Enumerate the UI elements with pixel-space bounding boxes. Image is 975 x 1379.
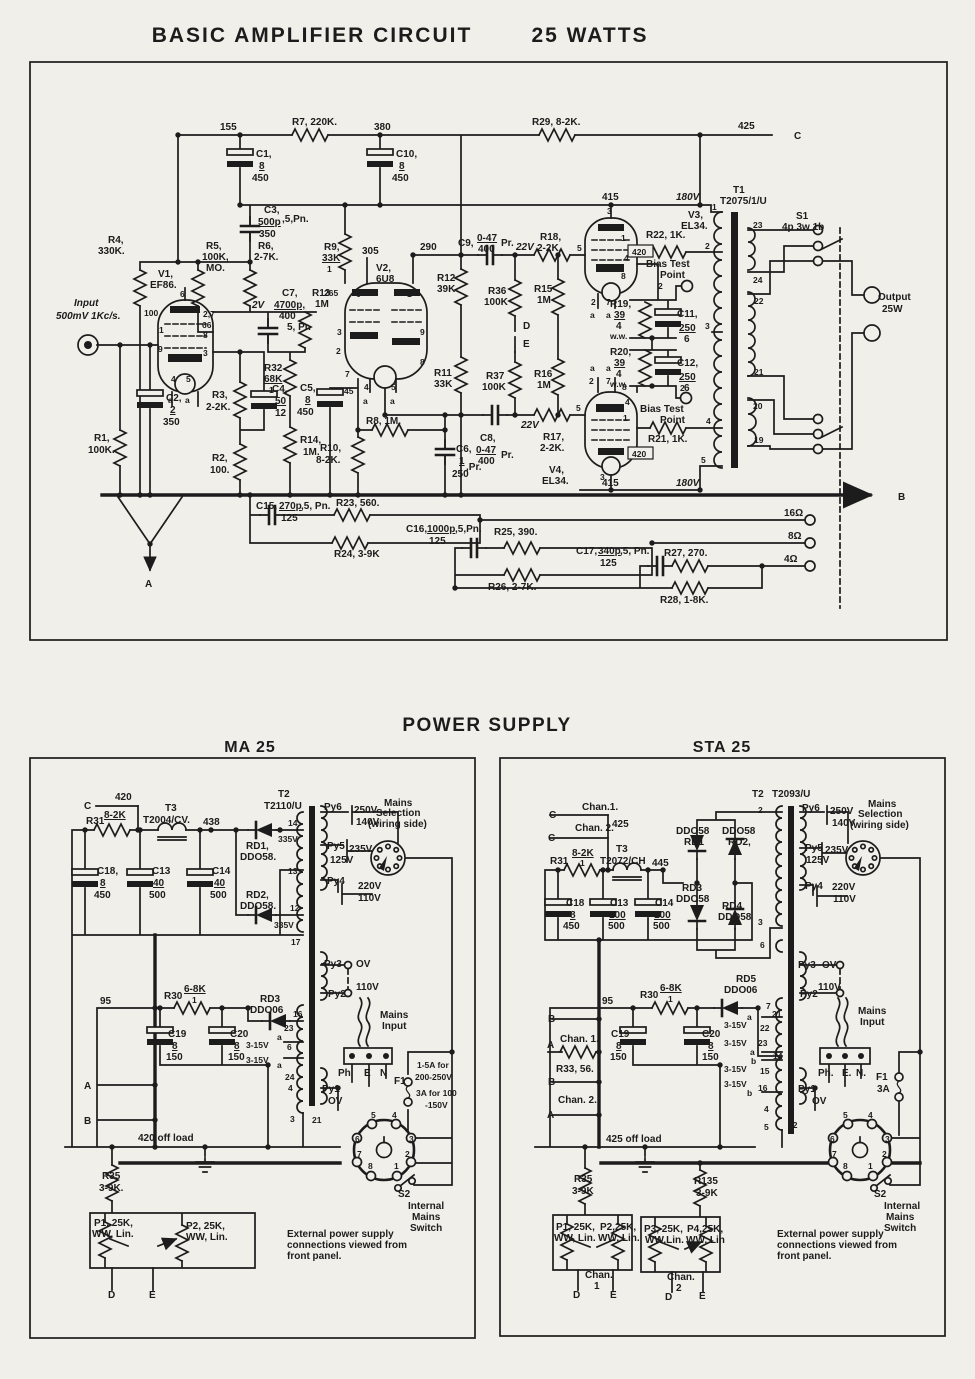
- schematic-label: 425: [612, 819, 629, 830]
- schematic-label: 1: [327, 264, 332, 274]
- schematic-label: P2, 25K,: [186, 1221, 225, 1232]
- schematic-label: 16Ω: [784, 508, 803, 519]
- schematic-label: C1,: [256, 149, 272, 160]
- sta-resistors: [560, 864, 712, 1262]
- schematic-label: R29, 8-2K.: [532, 117, 581, 128]
- schematic-label: 125V: [806, 855, 830, 866]
- schematic-label: 250: [452, 469, 469, 480]
- schematic-label: Py4: [327, 876, 345, 887]
- schematic-label: ,5, Pn.: [620, 546, 650, 557]
- schematic-label: OV: [328, 1096, 343, 1107]
- schematic-label: Chan.1.: [582, 802, 618, 813]
- schematic-label: 100K: [484, 297, 509, 308]
- schematic-label: 6-8K: [660, 983, 682, 994]
- schematic-label: R18,: [540, 232, 561, 243]
- schematic-label: 2: [658, 281, 663, 291]
- schematic-label: Chan.: [585, 1270, 613, 1281]
- schematic-label: b: [751, 1056, 756, 1066]
- schematic-label: C: [548, 833, 555, 844]
- schematic-label: E: [149, 1290, 156, 1301]
- schematic-label: R26, 2-7K.: [488, 582, 537, 593]
- schematic-label: Bias Test: [640, 404, 684, 415]
- schematic-label: 2-2K.: [206, 402, 231, 413]
- schematic-label: 500: [608, 921, 625, 932]
- schematic-label: 420 off load: [138, 1133, 194, 1144]
- schematic-label: 2-7K.: [254, 252, 279, 263]
- amplifier-panel: 155R7, 220K.380R29, 8-2K.425CC1,8450C10,…: [56, 117, 911, 608]
- schematic-label: 4Ω: [784, 554, 798, 565]
- schematic-label: A: [84, 1081, 91, 1092]
- sta25-panel: Chan.1.CChan. 2.C425R318-2K1T3T2072/CH44…: [535, 789, 923, 1303]
- schematic-label: Chan.: [667, 1272, 695, 1283]
- schematic-label: 2: [680, 383, 685, 393]
- schematic-label: External power supply: [777, 1229, 884, 1240]
- schematic-label: 7: [766, 1001, 771, 1011]
- schematic-label: 180V: [676, 478, 701, 489]
- schematic-label: 335V: [274, 920, 294, 930]
- schematic-label: 15: [760, 1066, 770, 1076]
- schematic-label: 3-15V: [724, 1064, 747, 1074]
- schematic-label: 12: [788, 1120, 798, 1130]
- schematic-label: RD3: [260, 994, 280, 1005]
- schematic-label: R23, 560.: [336, 498, 380, 509]
- schematic-label: 6-8K: [184, 984, 206, 995]
- schematic-label: WW.Lin.: [645, 1235, 684, 1246]
- schematic-label: 2V: [251, 300, 266, 311]
- schematic-label: 2: [758, 805, 763, 815]
- schematic-label: 3-9K: [696, 1188, 718, 1199]
- schematic-label: 425: [738, 121, 755, 132]
- schematic-label: C13: [610, 898, 629, 909]
- schematic-label: 3: [203, 348, 208, 358]
- fuse-f1-sta: [895, 1073, 903, 1101]
- schematic-label: OV: [356, 959, 371, 970]
- schematic-label: 7: [606, 376, 611, 386]
- schematic-label: 420: [632, 247, 646, 257]
- schematic-label: connections viewed from: [287, 1240, 407, 1251]
- schematic-label: 1: [712, 202, 717, 212]
- schematic-label: 4: [868, 1110, 873, 1120]
- schematic-label: Chan. 1.: [560, 1034, 599, 1045]
- amp-capacitors: [137, 149, 681, 575]
- schematic-label: 13: [288, 866, 298, 876]
- schematic-label: RD1,: [246, 841, 269, 852]
- schematic-label: b: [747, 1088, 752, 1098]
- schematic-label: 450: [392, 173, 409, 184]
- schematic-label: 1: [192, 995, 197, 1005]
- schematic-label: 1: [868, 1161, 873, 1171]
- schematic-label: Mains: [886, 1212, 915, 1223]
- schematic-label: ,5,Pn.: [455, 524, 482, 535]
- schematic-label: MO.: [206, 263, 225, 274]
- schematic-label: Py6: [324, 802, 342, 813]
- schematic-label: 33K: [434, 379, 453, 390]
- schematic-label: 8: [399, 161, 405, 172]
- schematic-label: S2: [874, 1189, 887, 1200]
- schematic-label: 125: [600, 558, 617, 569]
- page-title: BASIC AMPLIFIER CIRCUIT: [152, 24, 473, 47]
- schematic-label: 250: [679, 372, 696, 383]
- schematic-label: C2,: [166, 393, 182, 404]
- schematic-label: 1: [394, 1161, 399, 1171]
- schematic-label: A: [145, 579, 152, 590]
- schematic-label: Switch: [884, 1223, 916, 1234]
- schematic-label: 6: [355, 1134, 360, 1144]
- output-transformer-t1: [714, 212, 756, 468]
- schematic-label: 3-9K.: [99, 1183, 124, 1194]
- schematic-label: 1M: [315, 299, 329, 310]
- mains-selector-sta: [846, 841, 880, 875]
- schematic-label: Internal: [884, 1201, 920, 1212]
- schematic-label: 6: [180, 289, 185, 299]
- schematic-label: B: [898, 492, 905, 503]
- schematic-label: 4: [392, 1110, 397, 1120]
- schematic-label: C18,: [97, 866, 118, 877]
- sta25-title: STA 25: [693, 739, 751, 756]
- schematic-label: 7: [357, 1149, 362, 1159]
- schematic-label: 6: [287, 1042, 292, 1052]
- schematic-label: 4: [364, 382, 369, 392]
- schematic-label: Py5: [805, 843, 823, 854]
- schematic-label: 6: [760, 940, 765, 950]
- schematic-label: 0-47: [477, 233, 497, 244]
- schematic-label: R10,: [320, 443, 341, 454]
- schematic-label: 438: [203, 817, 220, 828]
- schematic-label: 7: [345, 369, 350, 379]
- schematic-label: Chan. 2.: [575, 823, 614, 834]
- schematic-label: Input: [382, 1021, 407, 1032]
- schematic-label: C20: [702, 1029, 721, 1040]
- schematic-label: Mains: [858, 1006, 887, 1017]
- schematic-label: R7, 220K.: [292, 117, 337, 128]
- schematic-label: C15,: [256, 501, 277, 512]
- schematic-label: 3: [409, 1134, 414, 1144]
- schematic-label: WW, Lin.: [598, 1233, 640, 1244]
- mains-selector-ma: [371, 841, 405, 875]
- schematic-label: 500: [210, 890, 227, 901]
- schematic-label: 5: [371, 1110, 376, 1120]
- schematic-label: R22, 1K.: [646, 230, 686, 241]
- schematic-label: R8, 1M.: [366, 416, 401, 427]
- schematic-label: R1,: [94, 433, 110, 444]
- schematic-label: R5,: [206, 241, 222, 252]
- schematic-label: Ph: [338, 1068, 351, 1079]
- schematic-label: E: [523, 339, 530, 350]
- schematic-label: F1: [876, 1072, 888, 1083]
- schematic-label: T3: [165, 803, 177, 814]
- schematic-label: 8: [843, 1161, 848, 1171]
- schematic-label: P2,25K,: [600, 1222, 636, 1233]
- schematic-label: 8: [616, 1041, 622, 1052]
- schematic-label: WW, Lin.: [186, 1232, 228, 1243]
- schematic-label: 415: [602, 192, 619, 203]
- schematic-label: P1, 25K,: [94, 1218, 133, 1229]
- schematic-label: 33K: [322, 253, 341, 264]
- schematic-label: 14: [773, 1051, 783, 1061]
- page-subtitle: 25 WATTS: [531, 24, 648, 47]
- schematic-label: 21: [772, 1009, 782, 1019]
- schematic-label: RD2,: [246, 890, 269, 901]
- schematic-label: 66: [202, 320, 212, 330]
- schematic-label: a: [590, 310, 595, 320]
- schematic-label: 21: [754, 367, 764, 377]
- schematic-label: 24: [753, 275, 763, 285]
- schematic-label: 8: [259, 161, 265, 172]
- schematic-label: 5: [843, 1110, 848, 1120]
- schematic-label: 9: [420, 327, 425, 337]
- schematic-label: E: [699, 1291, 706, 1302]
- schematic-label: 22: [760, 1023, 770, 1033]
- schematic-label: F1: [394, 1076, 406, 1087]
- schematic-label: 8-2K: [104, 810, 126, 821]
- schematic-label: 1: [668, 994, 673, 1004]
- schematic-label: 2: [676, 1283, 682, 1294]
- schematic-label: C18: [566, 898, 585, 909]
- schematic-label: 25W: [882, 304, 903, 315]
- schematic-label: 290: [420, 242, 437, 253]
- schematic-label: front panel.: [777, 1251, 832, 1262]
- schematic-label: 39: [614, 358, 626, 369]
- schematic-label: 3-15V: [246, 1040, 269, 1050]
- schematic-label: R36: [488, 286, 507, 297]
- schematic-label: T2110/U: [264, 801, 302, 812]
- schematic-label: 500: [149, 890, 166, 901]
- schematic-label: R4,: [108, 235, 124, 246]
- schematic-label: 4700p,: [274, 300, 305, 311]
- schematic-label: 4: [288, 1083, 293, 1093]
- schematic-label: DDO58: [722, 826, 756, 837]
- schematic-label: 125: [429, 536, 446, 547]
- schematic-label: 110V: [358, 893, 381, 904]
- schematic-label: R14,: [300, 435, 321, 446]
- schematic-label: WW, Lin.: [92, 1229, 134, 1240]
- schematic-label: D: [108, 1290, 115, 1301]
- schematic-label: 1: [580, 858, 585, 868]
- schematic-label: C7,: [282, 288, 298, 299]
- schematic-label: 1-5A for: [417, 1060, 449, 1070]
- schematic-label: WW, Lin: [686, 1235, 725, 1246]
- schematic-label: 4p 3w 1b: [782, 222, 824, 233]
- schematic-label: 1: [159, 325, 164, 335]
- schematic-label: 8: [172, 1041, 178, 1052]
- schematic-label: 3-15V: [724, 1038, 747, 1048]
- schematic-label: N: [380, 1068, 387, 1079]
- schematic-label: 5: [577, 243, 582, 253]
- schematic-label: 16: [758, 1083, 768, 1093]
- schematic-label: 500: [653, 921, 670, 932]
- schematic-label: 4: [625, 397, 630, 407]
- schematic-label: T1: [733, 185, 745, 196]
- schematic-label: 450: [297, 407, 314, 418]
- schematic-label: RD4: [722, 901, 742, 912]
- schematic-label: R31: [550, 856, 569, 867]
- schematic-label: C19: [611, 1029, 630, 1040]
- schematic-label: 3A: [877, 1084, 890, 1095]
- schematic-label: 8: [100, 878, 106, 889]
- schematic-label: 150: [166, 1052, 183, 1063]
- ma25-panel: C420R318-2KT3T2004/CV.438C18,8450C134050…: [65, 789, 457, 1301]
- schematic-label: C10,: [396, 149, 417, 160]
- schematic-label: 45: [344, 386, 354, 396]
- schematic-label: 6: [830, 1134, 835, 1144]
- schematic-label: C: [794, 131, 801, 142]
- schematic-label: N.: [856, 1068, 866, 1079]
- schematic-label: T2004/CV.: [143, 815, 190, 826]
- schematic-label: 350: [163, 417, 180, 428]
- schematic-label: A: [547, 1110, 554, 1121]
- schematic-label: 0-47: [476, 445, 496, 456]
- schematic-label: R20,: [610, 347, 631, 358]
- schematic-label: 3-15V: [724, 1020, 747, 1030]
- schematic-label: 6U8: [376, 274, 395, 285]
- schematic-label: 110V: [356, 982, 379, 993]
- schematic-label: External power supply: [287, 1229, 394, 1240]
- schematic-label: 7: [832, 1149, 837, 1159]
- schematic-label: RD3: [682, 883, 702, 894]
- schematic-label: a: [277, 1060, 282, 1070]
- schematic-label: Py2: [800, 989, 818, 1000]
- schematic-label: C6,: [456, 444, 472, 455]
- schematic-label: DDO06: [724, 985, 758, 996]
- schematic-label: ,5, Pn.: [301, 501, 331, 512]
- schematic-label: 8: [708, 1041, 714, 1052]
- schematic-label: Chan. 2.: [558, 1095, 597, 1106]
- schematic-label: 100: [654, 910, 671, 921]
- schematic-label: Py4: [805, 881, 823, 892]
- schematic-label: 250: [679, 323, 696, 334]
- schematic-label: 8: [420, 357, 425, 367]
- schematic-label: S1: [796, 211, 809, 222]
- schematic-label: D: [573, 1290, 580, 1301]
- schematic-label: 68K: [264, 374, 283, 385]
- schematic-label: 450: [94, 890, 111, 901]
- schematic-label: 220V: [358, 881, 382, 892]
- schematic-label: Point: [660, 270, 686, 281]
- schematic-label: 1M: [537, 380, 551, 391]
- schematic-label: 110V: [833, 894, 856, 905]
- schematic-label: 22: [754, 296, 764, 306]
- schematic-label: Pr.: [501, 238, 514, 249]
- schematic-label: 1: [623, 413, 628, 423]
- schematic-label: P4,25K,: [687, 1224, 723, 1235]
- schematic-label: R25, 390.: [494, 527, 538, 538]
- schematic-label: R30: [164, 991, 183, 1002]
- schematic-label: 155: [220, 122, 237, 133]
- schematic-label: Ph.: [818, 1068, 834, 1079]
- schematic-label: Internal: [408, 1201, 444, 1212]
- schematic-label: 100K.: [88, 445, 115, 456]
- schematic-label: 95: [602, 996, 614, 1007]
- schematic-label: Py3: [324, 959, 342, 970]
- schematic-label: 23: [758, 1038, 768, 1048]
- schematic-label: RD5: [736, 974, 756, 985]
- schematic-label: C16,: [406, 524, 427, 535]
- schematic-label: V2,: [376, 263, 391, 274]
- schematic-label: 100K: [482, 382, 507, 393]
- schematic-label: 6: [684, 383, 690, 394]
- schematic-label: 1000p: [427, 524, 455, 535]
- schematic-label: Point: [660, 415, 686, 426]
- schematic-label: R135: [694, 1176, 718, 1187]
- schematic-label: Input: [860, 1017, 885, 1028]
- schematic-label: Py1: [798, 1084, 816, 1095]
- schematic-label: DDO58.: [240, 901, 276, 912]
- schematic-label: T2072/CH: [600, 856, 646, 867]
- schematic-label: V3,: [688, 210, 703, 221]
- schematic-label: 445: [652, 858, 669, 869]
- schematic-label: 125: [281, 513, 298, 524]
- schematic-label: 3: [705, 321, 710, 331]
- schematic-label: R27, 270.: [664, 548, 708, 559]
- schematic-label: 23: [753, 220, 763, 230]
- schematic-label: 100: [144, 308, 158, 318]
- schematic-label: C17,: [576, 546, 597, 557]
- schematic-label: R11: [434, 368, 452, 379]
- schematic-label: R30: [640, 990, 659, 1001]
- schematic-label: 5, Pr.: [287, 322, 311, 333]
- schematic-label: EL34.: [542, 476, 569, 487]
- schematic-label: OV: [812, 1096, 827, 1107]
- schematic-label: 8: [234, 1041, 240, 1052]
- mains-transformer-t2-ma: [297, 806, 327, 1113]
- schematic-label: B: [548, 1077, 555, 1088]
- schematic-label: 6: [356, 289, 361, 299]
- schematic-label: R9,: [324, 242, 340, 253]
- schematic-label: 23: [284, 1023, 294, 1033]
- schematic-label: 95: [100, 996, 112, 1007]
- schematic-label: 17: [291, 937, 301, 947]
- schematic-label: C: [549, 810, 556, 821]
- schematic-label: C20: [230, 1029, 249, 1040]
- schematic-label: 150: [228, 1052, 245, 1063]
- schematic-label: 150: [702, 1052, 719, 1063]
- schematic-label: C9,: [458, 238, 474, 249]
- schematic-label: 420: [632, 449, 646, 459]
- schematic-label: B: [548, 1014, 555, 1025]
- ground-ma: [196, 1158, 214, 1172]
- schematic-label: DDO06: [250, 1005, 284, 1016]
- schematic-label: 6: [684, 334, 690, 345]
- schematic-label: 3: [337, 327, 342, 337]
- schematic-label: a: [590, 363, 595, 373]
- schematic-label: 3: [607, 206, 612, 216]
- schematic-label: 8: [203, 330, 208, 340]
- schematic-label: R28, 1-8K.: [660, 595, 709, 606]
- schematic-label: C5,: [300, 383, 316, 394]
- schematic-label: 250V: [830, 806, 854, 817]
- schematic-label: 8: [622, 382, 627, 392]
- schematic-label: R16: [534, 369, 553, 380]
- schematic-label: 1: [594, 1281, 600, 1292]
- schematic-label: 425 off load: [606, 1134, 662, 1145]
- schematic-label: D: [523, 321, 530, 332]
- schematic-label: R12: [437, 273, 456, 284]
- schematic-label: 3A for 100: [416, 1088, 457, 1098]
- schematic-label: 2: [405, 1149, 410, 1159]
- schematic-label: 50: [275, 396, 287, 407]
- schematic-label: Mains: [412, 1212, 441, 1223]
- schematic-label: 40: [214, 878, 226, 889]
- schematic-label: DDO58: [676, 826, 710, 837]
- schematic-label: a: [185, 395, 190, 405]
- schematic-label: T3: [616, 844, 628, 855]
- schematic-label: R2,: [212, 453, 228, 464]
- schematic-label: Mains: [380, 1010, 409, 1021]
- schematic-label: 22V: [515, 242, 535, 253]
- schematic-label: 400: [478, 244, 495, 255]
- schematic-label: Py1: [322, 1084, 340, 1095]
- schematic-label: a: [363, 396, 368, 406]
